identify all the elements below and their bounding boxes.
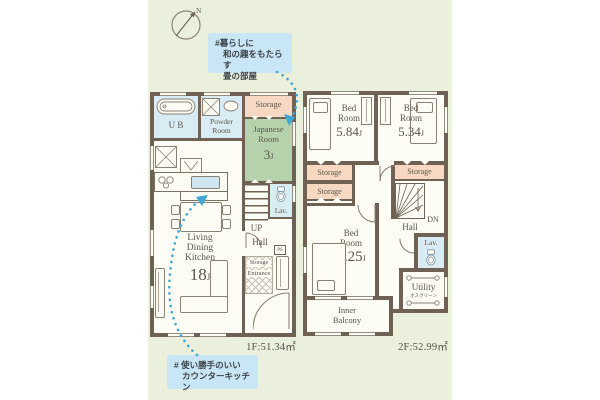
label-up: UP (245, 223, 268, 233)
pillow (317, 280, 335, 291)
sliding-door-mark (333, 197, 341, 201)
room-size-bed2: 5.34J (385, 124, 437, 141)
window (444, 107, 448, 133)
size-unit: J (421, 129, 424, 138)
room-label-japanese: Japanese Room (245, 125, 292, 145)
window (349, 332, 375, 336)
room-size-bed1: 5.84J (325, 124, 373, 141)
window (160, 92, 186, 96)
size-unit: J (363, 254, 366, 263)
door-arc-bed2 (379, 165, 396, 182)
callout-line: #暮らしに (215, 38, 287, 49)
tv-board (155, 268, 165, 318)
sliding-door-mark (333, 161, 341, 165)
label-line: Room (245, 135, 292, 145)
label-line: Room (385, 114, 437, 124)
callout-line: # 使い勝手のいい (174, 360, 253, 371)
dining-chair (171, 205, 180, 215)
refrigerator-icon (180, 158, 202, 173)
size-unit: J (270, 152, 273, 161)
kitchen-counter-return (180, 191, 228, 201)
callout-line: 畳の部屋 (215, 71, 287, 82)
room-lavatory-1f: Lav. (268, 184, 292, 219)
size-value: 5.84 (336, 124, 359, 139)
label-utility-sub: ホスクリーン (403, 293, 444, 298)
window (444, 277, 448, 297)
sliding-door-mark (251, 116, 259, 120)
label-dn: DN (422, 215, 444, 224)
dining-table (180, 202, 222, 232)
floor-plan-1f: U B Powder Room Storage Japanese (150, 92, 296, 337)
sliding-door-mark (265, 116, 273, 120)
stairs-up (245, 184, 268, 222)
door-arc-lav2f (399, 238, 415, 254)
room-label-storage: Storage (245, 100, 292, 110)
closet-icon (155, 146, 177, 168)
shoe-cabinet (276, 256, 289, 290)
label-hall-1f: Hall (245, 237, 275, 247)
sink-icon (223, 100, 239, 112)
window (292, 186, 296, 202)
room-label-storage: Storage (307, 187, 352, 196)
room-size-japanese: 3J (245, 148, 292, 163)
sliding-door-mark (317, 197, 325, 201)
door-arc-bed3 (357, 204, 376, 223)
room-lavatory-2f: Lav. (418, 237, 444, 268)
sofa-horizontal (180, 296, 228, 313)
kitchen-sink (191, 176, 220, 189)
window (168, 333, 194, 337)
room-storage-a: Storage (307, 165, 352, 182)
wall (389, 296, 393, 336)
stairs-down (395, 183, 425, 219)
room-label-bed2: Bed Room 5.34J (385, 104, 437, 141)
label-line: Room (201, 127, 242, 136)
size-value: 18 (190, 265, 207, 284)
label-entrance: Entrance (246, 270, 272, 277)
window (150, 230, 154, 256)
closet (361, 97, 372, 125)
kitchen-counter (154, 172, 228, 192)
room-label-balcony: Inner Balcony (307, 305, 387, 325)
label-entrance-storage: Storage (247, 260, 271, 267)
washing-machine-icon (202, 98, 220, 116)
room-label-lav: Lav. (270, 207, 292, 215)
room-storage-b: Storage (307, 184, 352, 201)
wall (307, 203, 355, 206)
wall (389, 309, 448, 313)
sliding-door-mark (265, 179, 273, 183)
compass-n-label: N (196, 6, 202, 15)
room-unit-bath: U B (154, 96, 201, 141)
dining-chair (171, 219, 180, 229)
dining-chair (222, 219, 231, 229)
room-label-ub: U B (154, 120, 198, 130)
window (150, 286, 154, 308)
room-powder: Powder Room (201, 96, 245, 141)
sliding-door-mark (421, 161, 429, 165)
window (347, 296, 373, 300)
floorplan-canvas: N #暮らしに 和の趣をもたらす 畳の部屋 # 使い勝手のいい カウンターキッチ… (0, 0, 600, 400)
window (204, 92, 230, 96)
wall (352, 165, 355, 203)
cabinet-line (280, 259, 281, 287)
stove-icon (157, 175, 177, 189)
compass-north-icon: N (164, 4, 208, 48)
room-label-lav: Lav. (418, 239, 444, 248)
window (250, 92, 288, 96)
window (315, 296, 341, 300)
dining-chair (222, 205, 231, 215)
window (303, 247, 307, 273)
room-japanese: Japanese Room 3J (242, 119, 292, 184)
window (292, 122, 296, 146)
sliding-door-mark (317, 161, 325, 165)
wall (374, 95, 378, 162)
label-hall-2f: Hall (395, 222, 425, 232)
window (331, 91, 359, 95)
laundry-pole-icon (406, 275, 440, 281)
window (315, 332, 341, 336)
sliding-door-mark (403, 161, 411, 165)
window (303, 107, 307, 133)
callout-line: カウンターキッチン (174, 371, 253, 393)
ps-box: PS (274, 245, 286, 255)
closet-line (366, 99, 367, 122)
tatami-room-callout: #暮らしに 和の趣をもたらす 畳の部屋 (208, 33, 292, 73)
toilet-icon (425, 249, 437, 266)
sliding-door-mark (251, 179, 259, 183)
area-label-1f: 1F:51.34㎡ (216, 339, 296, 354)
area-label-2f: 2F:52.99㎡ (368, 339, 448, 354)
size-unit: J (359, 129, 362, 138)
room-label-utility: Utility (403, 282, 444, 292)
size-value: 5.34 (398, 124, 421, 139)
room-utility: Utility ホスクリーン (403, 272, 444, 309)
window (409, 91, 437, 95)
window (200, 333, 226, 337)
callout-line: 和の趣をもたらす (215, 49, 287, 71)
tv-line (158, 272, 159, 312)
label-line: Inner (307, 305, 387, 315)
label-line: Balcony (307, 315, 387, 325)
bed (312, 243, 346, 295)
room-label-storage: Storage (395, 167, 444, 176)
window (150, 146, 154, 170)
laundry-pole-icon (406, 300, 440, 306)
bathtub-icon (156, 98, 196, 116)
floor-plan-2f: Bed Room 5.84J Bed Room 5.34J Storage (303, 91, 448, 336)
counter-kitchen-callout: # 使い勝手のいい カウンターキッチン (167, 355, 258, 389)
toilet-icon (275, 186, 287, 202)
front-door-arc (253, 290, 291, 332)
room-label-storage: Storage (307, 168, 352, 177)
room-storage-c: Storage (395, 165, 444, 181)
room-label-powder: Powder Room (201, 118, 242, 135)
